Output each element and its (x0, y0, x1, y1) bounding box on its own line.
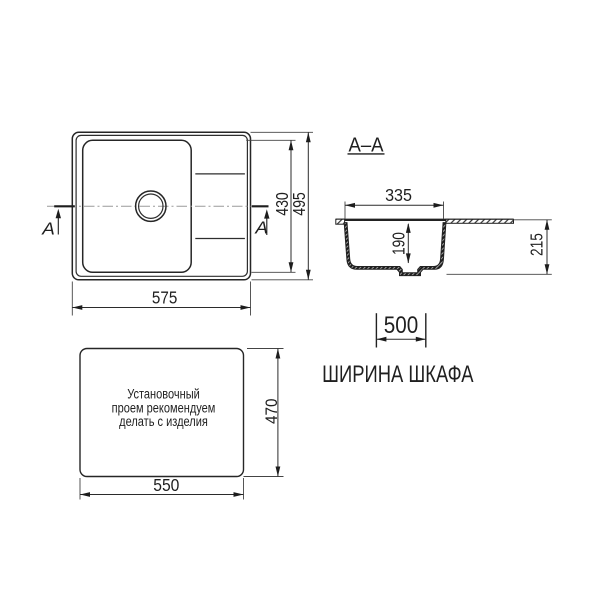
svg-text:215: 215 (528, 233, 547, 256)
svg-text:575: 575 (152, 289, 177, 308)
svg-text:А: А (254, 217, 268, 237)
svg-text:делать с изделия: делать с изделия (119, 414, 208, 429)
svg-text:А: А (41, 218, 55, 238)
svg-text:495: 495 (290, 192, 310, 216)
svg-text:ШИРИНА ШКАФА: ШИРИНА ШКАФА (322, 362, 474, 388)
svg-text:190: 190 (390, 232, 409, 255)
svg-text:470: 470 (262, 398, 281, 424)
svg-text:500: 500 (384, 312, 418, 339)
svg-text:335: 335 (385, 186, 412, 206)
svg-text:550: 550 (153, 475, 179, 495)
